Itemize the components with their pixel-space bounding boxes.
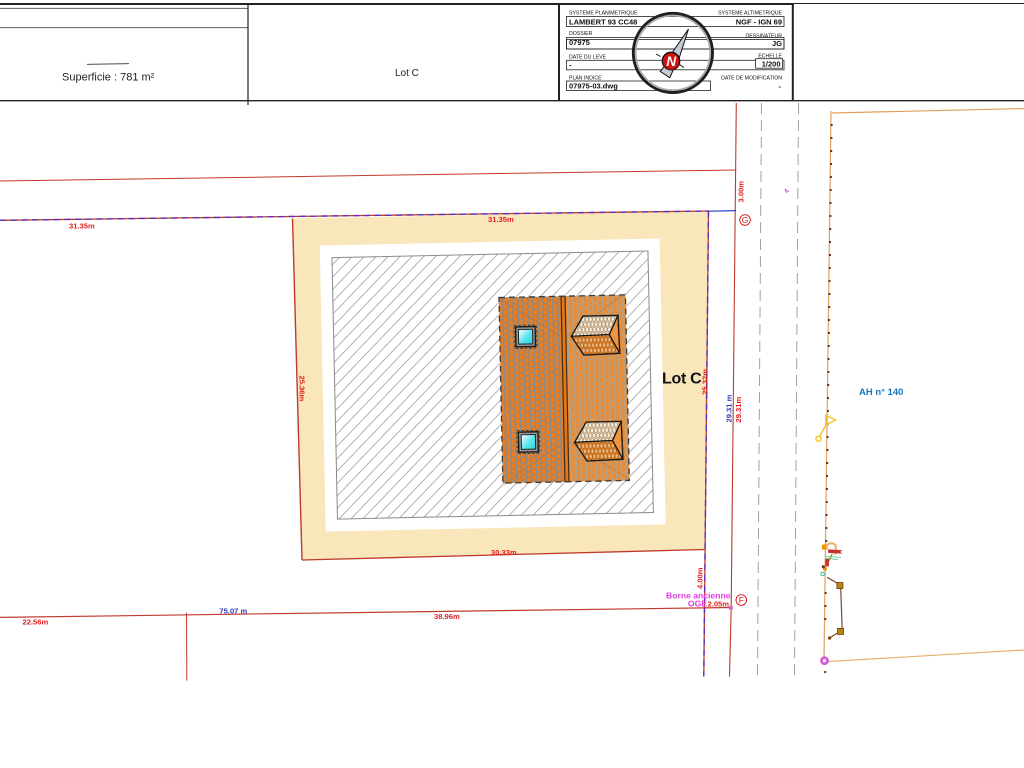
svg-text:G: G (742, 215, 749, 225)
svg-text:38.96m: 38.96m (434, 612, 460, 621)
svg-text:DATE DU LEVE: DATE DU LEVE (569, 54, 607, 60)
svg-text:07975: 07975 (569, 38, 590, 47)
svg-text:N: N (666, 54, 676, 69)
svg-text:Lot C: Lot C (395, 68, 419, 79)
svg-text:-: - (779, 82, 782, 91)
svg-text:31.35m: 31.35m (69, 222, 95, 231)
svg-text:25.32m: 25.32m (701, 369, 710, 395)
svg-text:30.33m: 30.33m (491, 548, 517, 557)
svg-text:AH n° 140: AH n° 140 (859, 387, 903, 398)
svg-text:SYSTEME PLANIMETRIQUE: SYSTEME PLANIMETRIQUE (569, 11, 638, 17)
svg-text:22.56m: 22.56m (23, 618, 49, 627)
svg-text:29.31 m: 29.31 m (725, 394, 734, 422)
svg-text:4.00m: 4.00m (695, 567, 704, 589)
svg-text:Superficie : 781 m²: Superficie : 781 m² (62, 72, 155, 84)
svg-text:SYSTEME ALTIMETRIQUE: SYSTEME ALTIMETRIQUE (718, 11, 782, 17)
svg-text:OGE: OGE (688, 599, 707, 609)
svg-text:Lot C: Lot C (662, 371, 702, 388)
svg-text:3.00m: 3.00m (737, 181, 746, 203)
svg-text:-: - (569, 61, 572, 70)
svg-text:31.35m: 31.35m (488, 215, 514, 224)
svg-text:LAMBERT 93 CC48: LAMBERT 93 CC48 (569, 17, 637, 26)
svg-text:DATE DE MODIFICATION: DATE DE MODIFICATION (721, 76, 782, 82)
svg-text:07975-03.dwg: 07975-03.dwg (569, 82, 618, 91)
svg-text:F: F (739, 595, 744, 605)
svg-text:2.05m: 2.05m (708, 599, 730, 608)
svg-text:NGF - IGN 69: NGF - IGN 69 (736, 17, 782, 26)
svg-text:DOSSIER: DOSSIER (569, 31, 593, 37)
svg-text:JG: JG (772, 39, 782, 48)
svg-text:1/200: 1/200 (762, 60, 781, 69)
svg-text:25.36m: 25.36m (298, 376, 307, 402)
svg-text:75.07 m: 75.07 m (219, 607, 247, 616)
svg-text:29.31m: 29.31m (734, 396, 743, 422)
